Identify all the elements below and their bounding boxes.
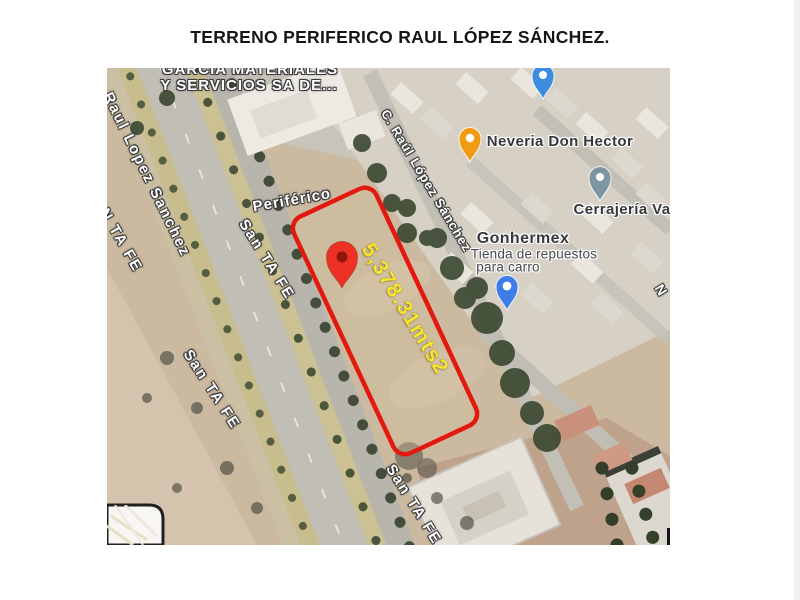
page-title: TERRENO PERIFERICO RAUL LÓPEZ SÁNCHEZ. [0, 27, 800, 48]
satellite-map: GARCIA MATERIALES Y SERVICIOS SA DE... R… [107, 68, 670, 545]
document-page: TERRENO PERIFERICO RAUL LÓPEZ SÁNCHEZ. [0, 0, 800, 600]
poi-label-garcia-line2: Y SERVICIOS SA DE... [160, 78, 337, 95]
poi-label-gonhermex-sub2: para carro [476, 261, 540, 276]
inset-minimap [107, 505, 163, 545]
edge-tick [667, 528, 670, 545]
poi-label-gonhermex: Gonhermex [477, 230, 570, 248]
page-edge-strip [794, 0, 800, 600]
poi-label-neveria: Neveria Don Hector [487, 134, 633, 151]
poi-label-cerrajeria: Cerrajería Va [574, 202, 670, 219]
